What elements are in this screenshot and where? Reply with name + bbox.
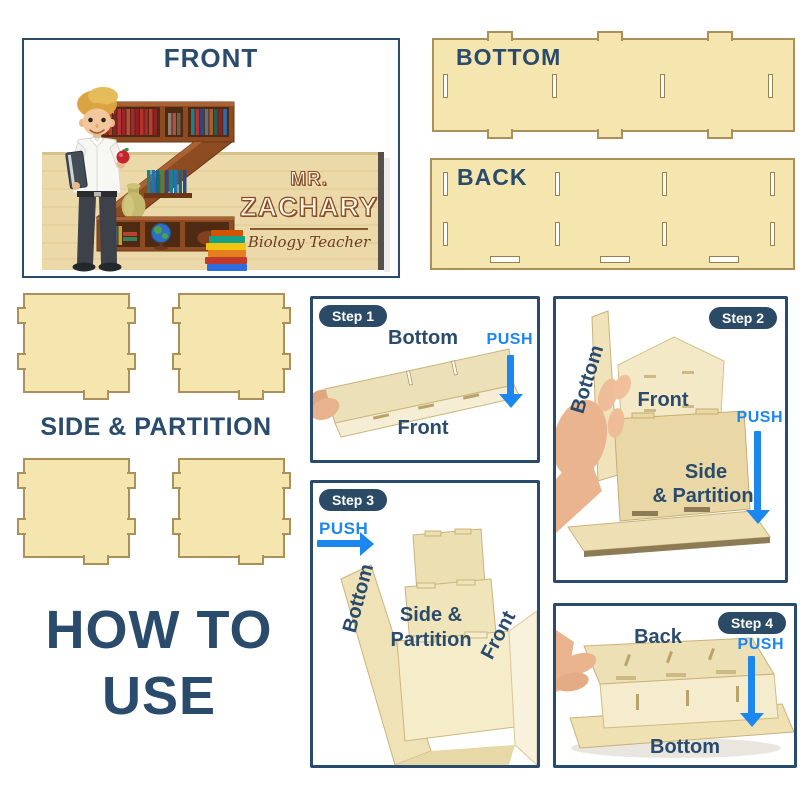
piece-tab	[487, 31, 513, 41]
how-to-use-heading: HOW TO USE	[0, 598, 318, 730]
side-partition-piece	[23, 293, 130, 393]
piece-tab	[172, 472, 181, 489]
piece-slot	[770, 222, 775, 246]
piece-slot	[490, 256, 520, 263]
name-divider	[250, 228, 368, 230]
step-badge: Step 3	[319, 489, 387, 511]
side-partition-piece	[23, 458, 130, 558]
push-arrow-down-icon	[507, 355, 514, 395]
piece-slot	[443, 222, 448, 246]
piece-tab	[282, 472, 291, 489]
bottom-piece-label: BOTTOM	[456, 44, 561, 71]
piece-tab	[597, 129, 623, 139]
piece-slot	[662, 172, 667, 196]
piece-slot	[555, 172, 560, 196]
how-to-use-line1: HOW TO	[0, 598, 318, 664]
piece-tab	[172, 353, 181, 370]
piece-tab	[83, 555, 109, 565]
product-instruction-sheet: FRONT	[0, 0, 800, 800]
piece-tab	[487, 129, 513, 139]
piece-tab	[707, 129, 733, 139]
piece-tab	[238, 390, 264, 400]
push-label: PUSH	[737, 409, 783, 427]
piece-tab	[127, 353, 136, 370]
piece-tab	[238, 555, 264, 565]
bottom-label: Bottom	[620, 736, 750, 759]
piece-tab	[17, 353, 26, 370]
piece-tab	[707, 31, 733, 41]
name-text: ZACHARY	[229, 192, 389, 223]
piece-tab	[282, 307, 291, 324]
step-badge: Step 1	[319, 305, 387, 327]
side-partition-label: SIDE & PARTITION	[0, 413, 312, 442]
push-arrow-down-icon	[748, 656, 755, 714]
back-piece-label: BACK	[457, 164, 527, 191]
step-3-box: Step 3 PUSH Bottom Side & Partition Fron…	[310, 480, 540, 768]
piece-slot	[768, 74, 773, 98]
step-2-box: Step 2 Bottom Front Side & Partition PUS…	[553, 296, 788, 583]
piece-slot	[770, 172, 775, 196]
piece-tab	[17, 472, 26, 489]
piece-tab	[17, 307, 26, 324]
piece-tab	[282, 353, 291, 370]
piece-tab	[127, 518, 136, 535]
piece-tab	[83, 390, 109, 400]
piece-tab	[17, 518, 26, 535]
piece-tab	[282, 518, 291, 535]
piece-slot	[443, 172, 448, 196]
side-partition-label: Side	[654, 461, 758, 484]
front-panel: FRONT	[22, 38, 400, 278]
piece-slot	[660, 74, 665, 98]
piece-slot	[709, 256, 739, 263]
push-label: PUSH	[738, 636, 784, 654]
name-plate-text: MR. ZACHARY Biology Teacher	[229, 169, 389, 251]
step-badge: Step 4	[718, 612, 786, 634]
piece-tab	[597, 31, 623, 41]
piece-slot	[662, 222, 667, 246]
name-subtitle: Biology Teacher	[229, 233, 389, 251]
piece-tab	[127, 472, 136, 489]
bottom-piece: BOTTOM	[432, 38, 795, 132]
piece-tab	[172, 307, 181, 324]
piece-slot	[555, 222, 560, 246]
piece-slot	[443, 74, 448, 98]
side-partition-piece	[178, 458, 285, 558]
push-label: PUSH	[487, 331, 533, 349]
push-arrow-right-icon	[317, 540, 361, 547]
front-label: Front	[611, 389, 715, 412]
piece-slot	[600, 256, 630, 263]
piece-tab	[172, 518, 181, 535]
how-to-use-line2: USE	[0, 664, 318, 730]
back-label: Back	[608, 626, 708, 649]
back-piece: BACK	[430, 158, 795, 270]
push-arrow-down-icon	[754, 431, 761, 511]
side-partition-piece	[178, 293, 285, 393]
piece-tab	[127, 307, 136, 324]
step-badge: Step 2	[709, 307, 777, 329]
name-prefix: MR.	[229, 169, 389, 191]
step-1-box: Step 1 Bottom PUSH Front	[310, 296, 540, 463]
front-label: Front	[343, 417, 503, 440]
bottom-label: Bottom	[343, 327, 503, 350]
piece-slot	[552, 74, 557, 98]
step-4-box: Step 4 Back PUSH Bottom	[553, 603, 797, 768]
